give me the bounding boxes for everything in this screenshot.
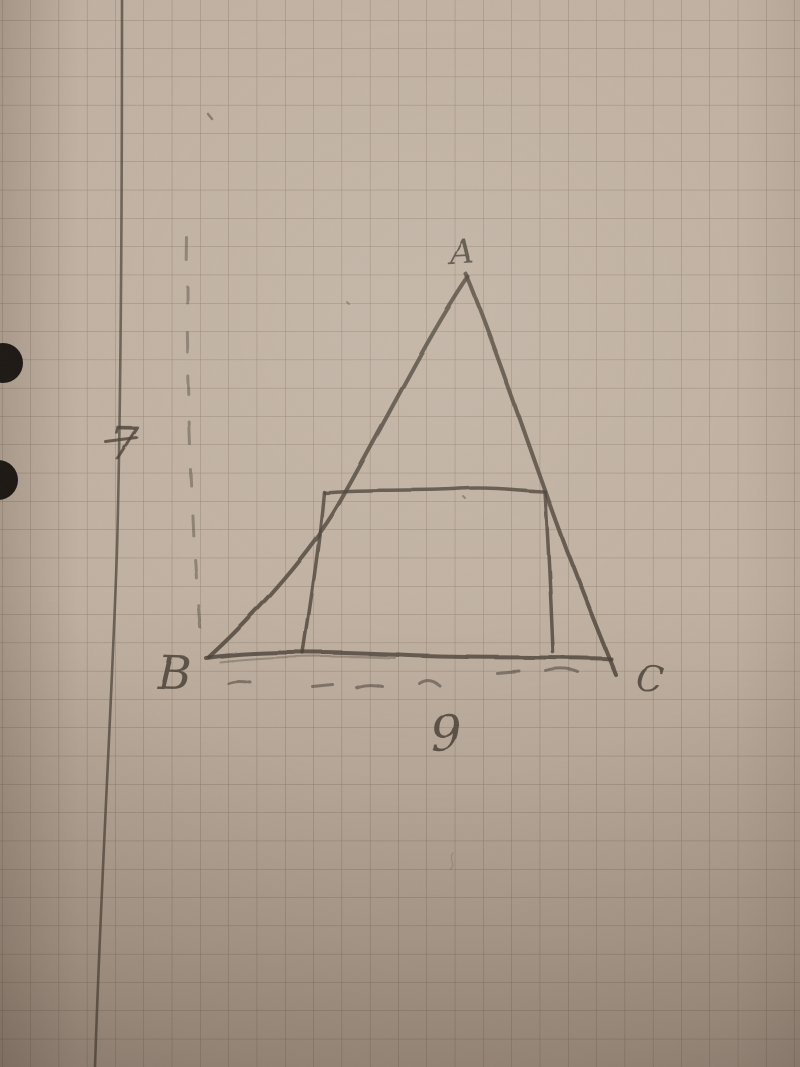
paper-grain-texture	[0, 0, 800, 1067]
geometry-sketch-canvas: A B C 7 9	[0, 0, 800, 1067]
photo-graph-paper-sketch: A B C 7 9	[0, 0, 800, 1067]
